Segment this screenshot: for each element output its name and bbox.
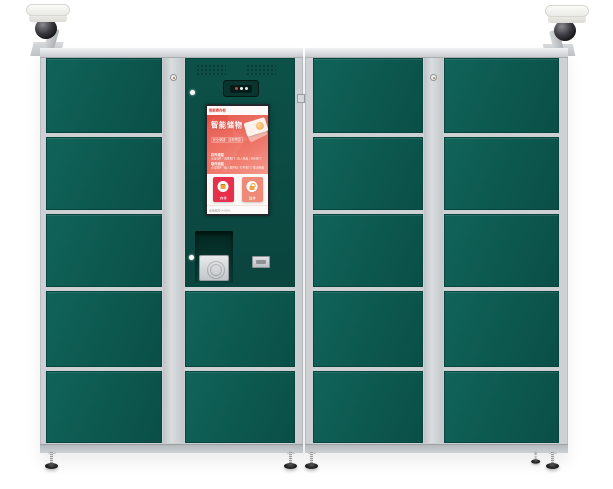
section-items: 点击取件 / 输入取件码 / 打开柜门 / 取出物品 <box>211 166 229 167</box>
cabinet-base <box>305 444 568 453</box>
pickup-button[interactable]: 取件 <box>242 177 263 202</box>
cabinet-base <box>40 444 303 453</box>
locker-door[interactable] <box>46 137 162 210</box>
status-led <box>190 90 195 95</box>
deposit-button[interactable]: 存件 <box>213 177 234 202</box>
deposit-icon <box>218 181 229 192</box>
locker-door[interactable] <box>444 291 559 367</box>
footer-left-text: 设备编号 A-0001 <box>209 208 231 212</box>
locker-door[interactable] <box>444 371 559 443</box>
banner-title: 智能储物 <box>211 119 250 130</box>
locker-door[interactable] <box>185 291 295 367</box>
camera-cap <box>26 4 70 16</box>
locker-door[interactable] <box>46 214 162 287</box>
speaker-grille-icon <box>246 64 276 77</box>
camera-led-white <box>245 87 248 90</box>
section-heading: 存件流程 <box>211 153 233 155</box>
keyhole-lock[interactable] <box>430 74 437 81</box>
nfc-card-reader[interactable] <box>199 255 229 281</box>
leveling-foot <box>45 451 59 473</box>
banner-section: 存件流程 点击存件 / 选择柜门 / 存入物品 / 关好柜门 <box>211 153 265 161</box>
camera-dome-icon <box>554 20 576 41</box>
locker-door[interactable] <box>313 371 423 443</box>
frame-strip <box>424 58 443 443</box>
banner-section: 取件流程 点击取件 / 输入取件码 / 打开柜门 / 取出物品 <box>211 162 265 170</box>
leveling-foot <box>284 451 298 473</box>
locker-door[interactable] <box>313 291 423 367</box>
leveling-foot <box>531 451 541 466</box>
deposit-button-label: 存件 <box>218 196 228 201</box>
locker-door[interactable] <box>444 214 559 287</box>
leveling-foot <box>305 451 319 473</box>
locker-door[interactable] <box>444 58 559 133</box>
leveling-foot <box>546 451 560 473</box>
screen-footer: 设备编号 A-0001 客服热线 <box>207 205 268 214</box>
locker-door[interactable] <box>313 58 423 133</box>
screen-brand-label: 智能寄存柜 <box>209 108 226 113</box>
section-heading: 取件流程 <box>211 162 233 164</box>
speaker-grille-icon <box>196 64 226 77</box>
locker-door[interactable] <box>313 214 423 287</box>
locker-door[interactable] <box>46 58 162 133</box>
frame-strip <box>163 58 184 443</box>
status-led <box>189 255 194 260</box>
camera-led-strip <box>230 85 252 93</box>
pickup-icon <box>247 181 258 192</box>
control-panel: 智能寄存柜 自助服务 24小时 智能储物 安全便捷 · 自助寄存 存件流程 点击… <box>185 58 295 287</box>
touchscreen[interactable]: 智能寄存柜 自助服务 24小时 智能储物 安全便捷 · 自助寄存 存件流程 点击… <box>205 104 270 216</box>
card-slot[interactable] <box>252 256 270 268</box>
cabinet-top-trim <box>40 48 303 58</box>
locker-door[interactable] <box>185 371 295 443</box>
locker-cabinet-left: 智能寄存柜 自助服务 24小时 智能储物 安全便捷 · 自助寄存 存件流程 点击… <box>40 48 303 453</box>
cabinet-top-trim <box>305 48 568 58</box>
face-camera-module <box>223 80 259 97</box>
locker-door[interactable] <box>46 371 162 443</box>
camera-led-white <box>240 87 243 90</box>
section-items: 点击存件 / 选择柜门 / 存入物品 / 关好柜门 <box>211 157 229 158</box>
screen-header: 智能寄存柜 自助服务 24小时 <box>207 106 268 115</box>
banner-badge: 安全便捷 · 自助寄存 <box>211 137 243 143</box>
seam-hinge <box>297 94 305 103</box>
camera-cap <box>545 5 589 17</box>
camera-led-red <box>235 87 238 90</box>
locker-door[interactable] <box>313 137 423 210</box>
reader-recess <box>195 231 233 283</box>
locker-cabinet-right <box>305 48 568 453</box>
pickup-button-label: 取件 <box>247 196 257 201</box>
smart-locker-scene: 智能寄存柜 自助服务 24小时 智能储物 安全便捷 · 自助寄存 存件流程 点击… <box>0 0 613 489</box>
keyhole-lock[interactable] <box>170 74 177 81</box>
locker-door[interactable] <box>444 137 559 210</box>
screen-banner: 智能储物 安全便捷 · 自助寄存 存件流程 点击存件 / 选择柜门 / 存入物品… <box>207 115 268 174</box>
locker-door[interactable] <box>46 291 162 367</box>
